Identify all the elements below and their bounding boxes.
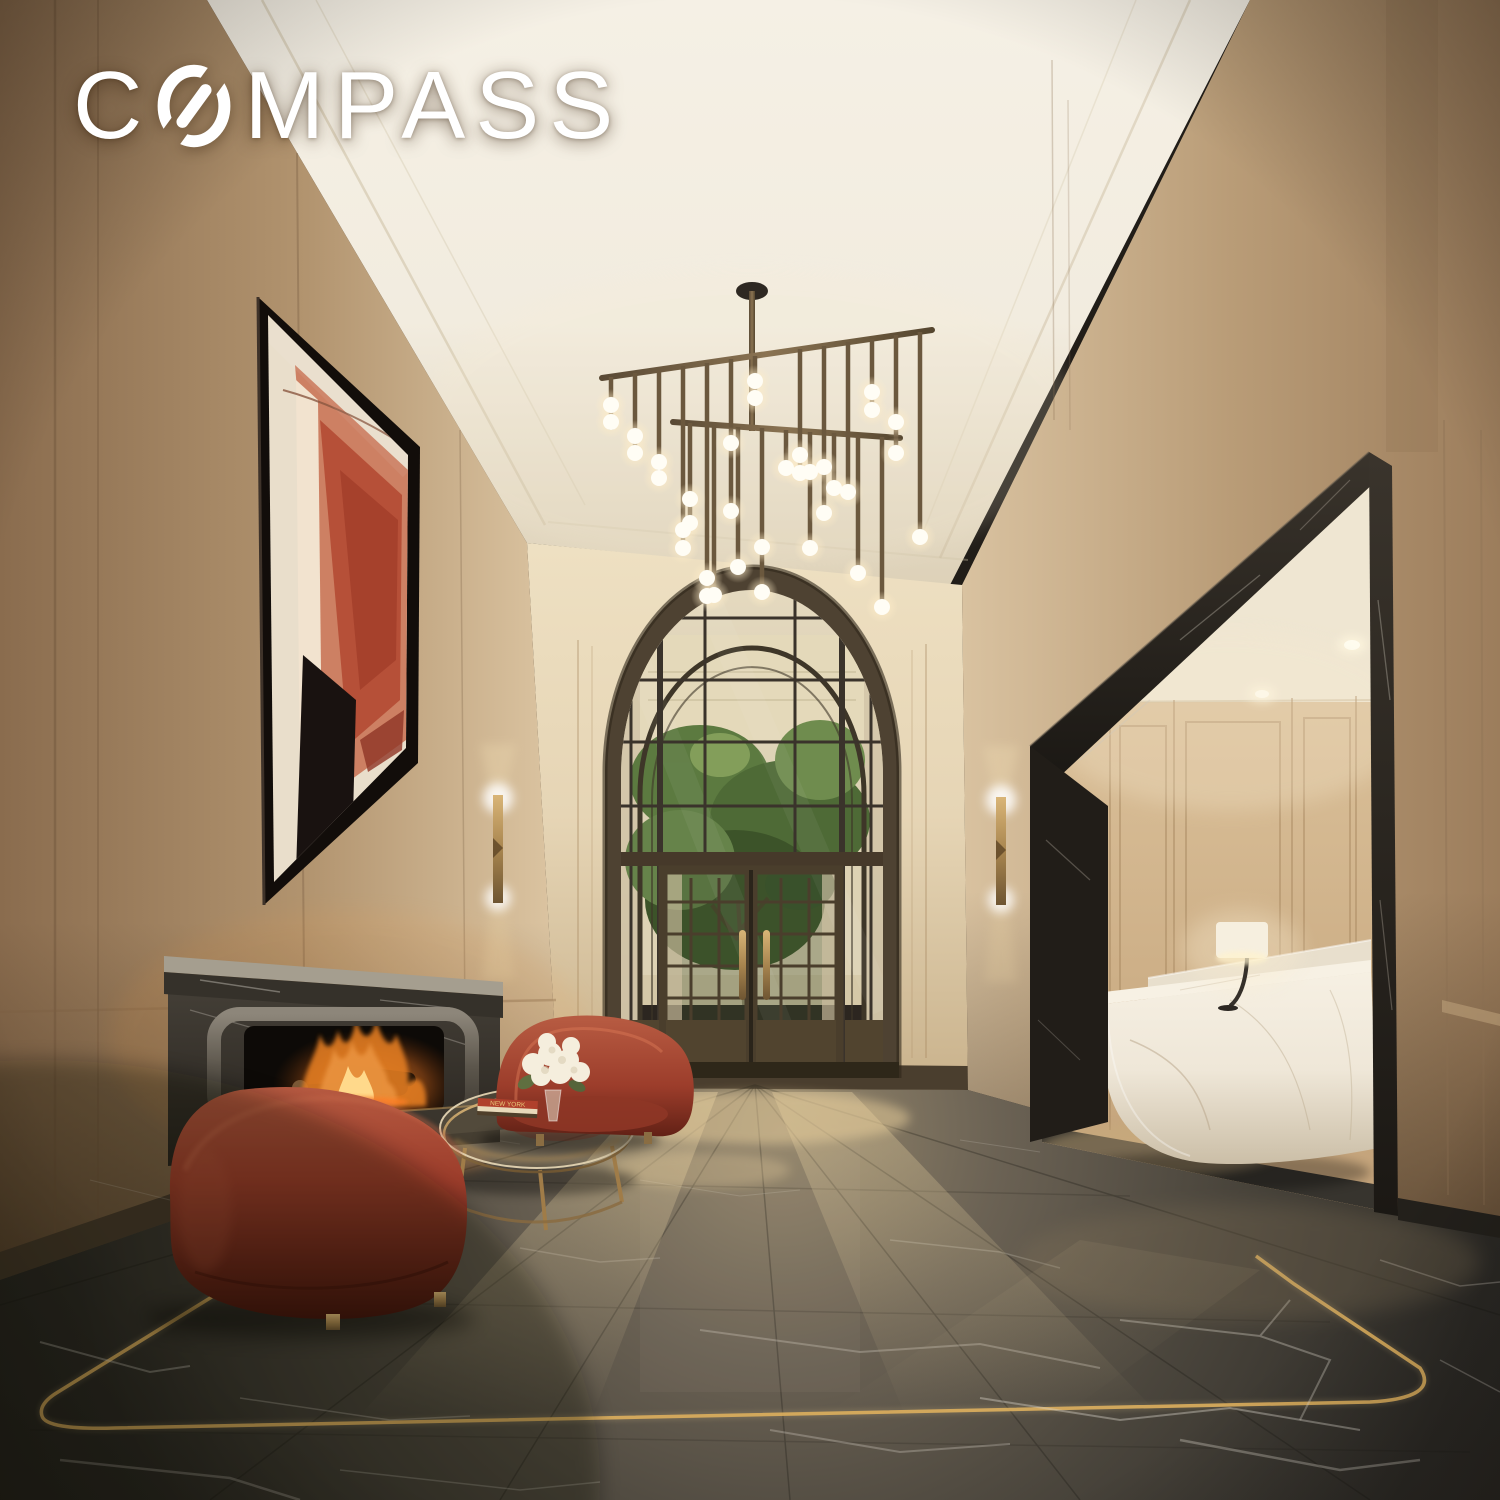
- lobby-scene-illustration: NEW YORK: [0, 0, 1500, 1500]
- compass-logo: C MPASS: [73, 58, 623, 154]
- compass-o-icon: [154, 62, 234, 150]
- vignette: [0, 0, 1500, 1500]
- logo-letters-mpass: MPASS: [244, 58, 623, 154]
- logo-letter-c: C: [73, 58, 152, 154]
- listing-photo: NEW YORK C MPASS: [0, 0, 1500, 1500]
